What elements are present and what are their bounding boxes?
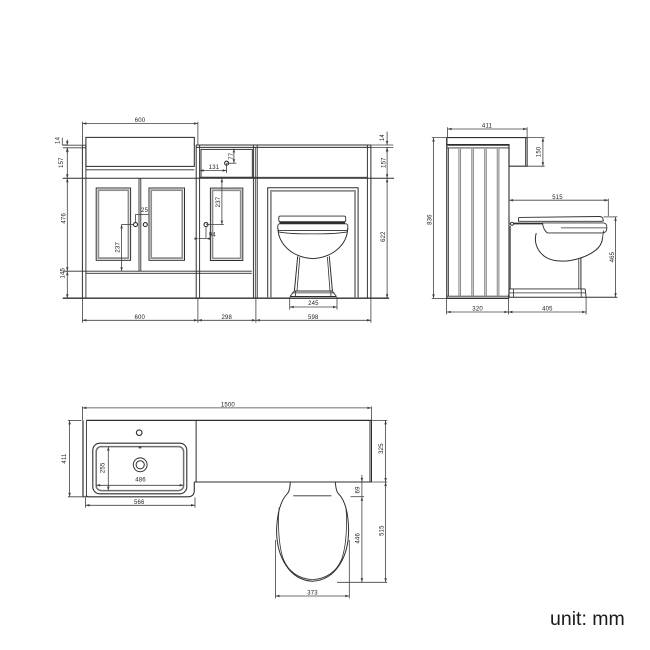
svg-text:157: 157	[59, 157, 65, 168]
svg-text:411: 411	[482, 124, 493, 130]
svg-text:515: 515	[552, 195, 563, 201]
svg-text:373: 373	[307, 590, 318, 596]
svg-text:515: 515	[379, 525, 385, 536]
svg-text:325: 325	[379, 443, 385, 454]
svg-text:446: 446	[355, 533, 361, 544]
svg-text:320: 320	[472, 307, 483, 313]
svg-text:566: 566	[134, 500, 145, 506]
svg-text:237: 237	[116, 242, 122, 253]
svg-text:145: 145	[60, 267, 66, 278]
svg-text:245: 245	[308, 301, 319, 307]
svg-text:77: 77	[229, 152, 235, 160]
svg-text:157: 157	[381, 157, 387, 168]
svg-text:94: 94	[209, 233, 217, 239]
svg-text:131: 131	[209, 165, 220, 171]
svg-text:255: 255	[100, 462, 106, 473]
svg-text:476: 476	[62, 213, 68, 224]
svg-text:465: 465	[610, 251, 616, 262]
svg-text:836: 836	[427, 214, 433, 225]
svg-text:25: 25	[141, 208, 149, 214]
svg-text:411: 411	[62, 453, 68, 464]
svg-text:237: 237	[216, 196, 222, 207]
svg-text:150: 150	[537, 146, 543, 157]
svg-text:600: 600	[135, 118, 146, 124]
svg-text:598: 598	[308, 315, 319, 321]
svg-text:486: 486	[135, 478, 146, 484]
svg-text:14: 14	[55, 136, 61, 144]
svg-text:14: 14	[380, 134, 386, 142]
svg-text:298: 298	[221, 315, 232, 321]
svg-text:600: 600	[134, 315, 145, 321]
svg-text:622: 622	[381, 231, 387, 242]
svg-text:1500: 1500	[221, 402, 236, 408]
svg-text:69: 69	[355, 486, 361, 494]
svg-text:405: 405	[542, 307, 553, 313]
